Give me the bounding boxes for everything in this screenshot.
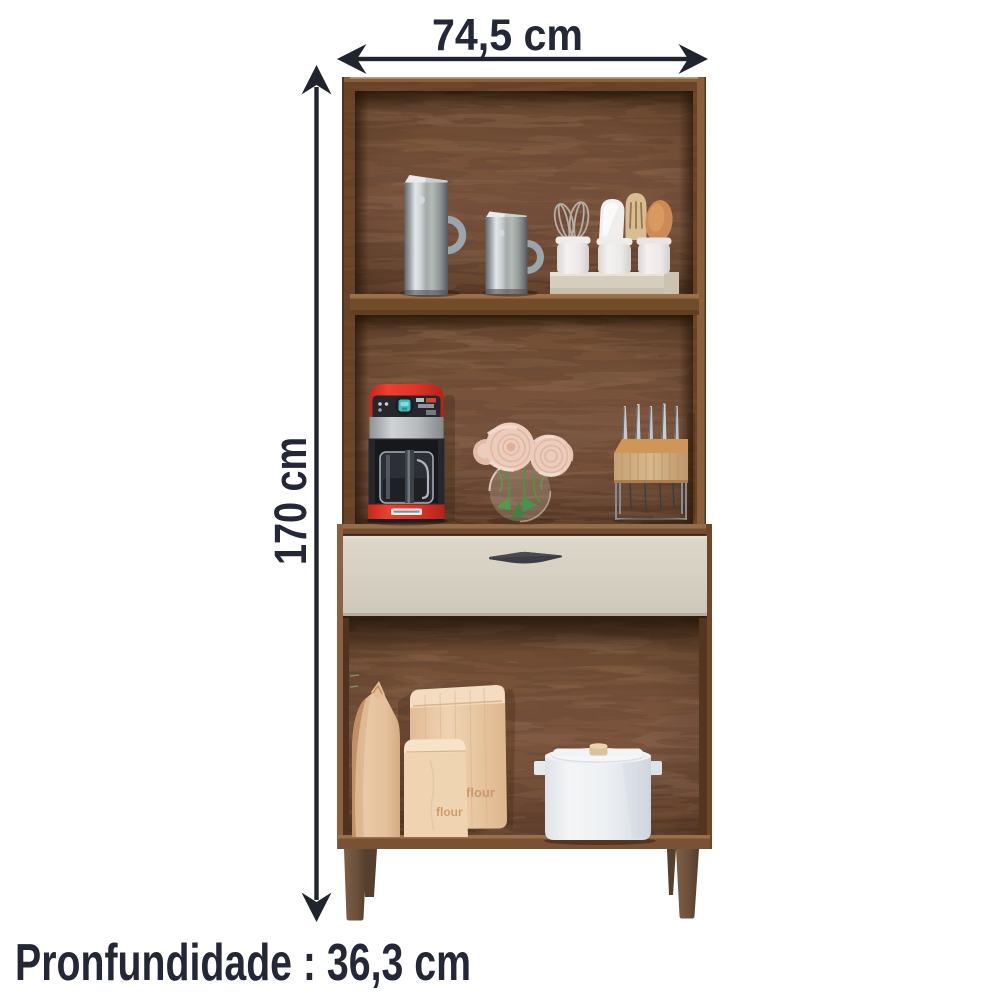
svg-text:flour: flour <box>466 785 495 800</box>
svg-text:flour: flour <box>436 805 463 819</box>
svg-text:Pronfundidade : 36,3 cm: Pronfundidade : 36,3 cm <box>15 934 471 992</box>
svg-text:170 cm: 170 cm <box>265 437 316 565</box>
svg-text:74,5 cm: 74,5 cm <box>432 11 583 60</box>
